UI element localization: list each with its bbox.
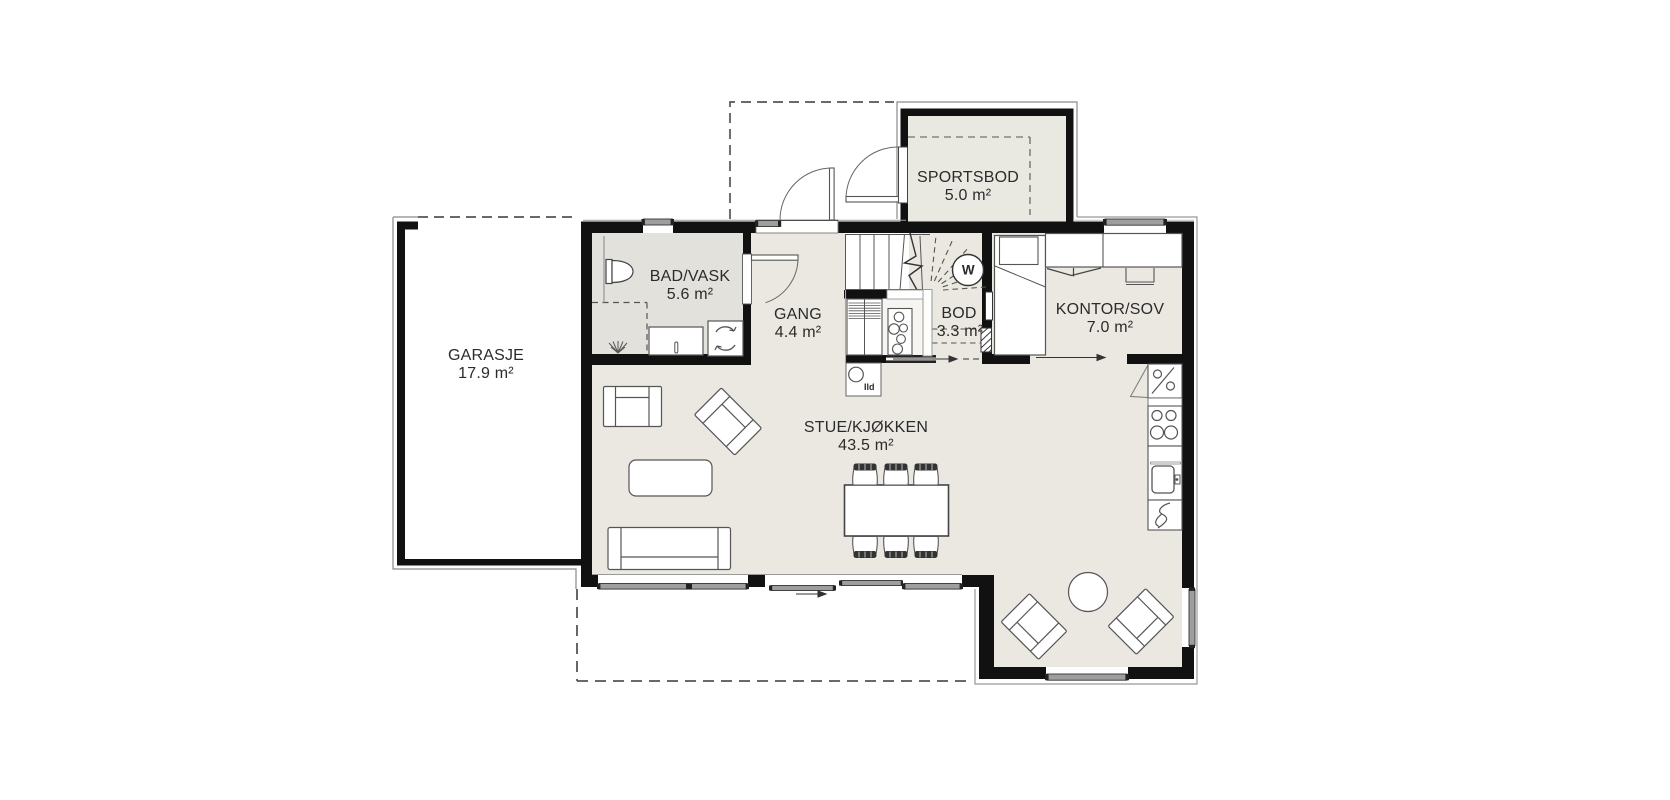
svg-text:43.5 m²: 43.5 m² [838,437,894,454]
svg-text:BAD/VASK: BAD/VASK [650,268,731,285]
svg-text:GANG: GANG [774,306,822,323]
svg-text:W: W [962,263,975,278]
svg-text:17.9 m²: 17.9 m² [458,365,514,382]
svg-text:5.6 m²: 5.6 m² [667,286,714,303]
svg-text:5.0 m²: 5.0 m² [945,187,992,204]
svg-text:Ild: Ild [864,382,875,392]
svg-text:4.4 m²: 4.4 m² [775,324,822,341]
svg-text:KONTOR/SOV: KONTOR/SOV [1056,301,1165,318]
svg-text:3.3 m²: 3.3 m² [937,323,984,340]
svg-text:BOD: BOD [941,305,976,322]
svg-text:STUE/KJØKKEN: STUE/KJØKKEN [804,419,928,436]
svg-text:7.0 m²: 7.0 m² [1087,319,1134,336]
svg-text:SPORTSBOD: SPORTSBOD [917,169,1019,186]
svg-text:GARASJE: GARASJE [448,347,524,364]
